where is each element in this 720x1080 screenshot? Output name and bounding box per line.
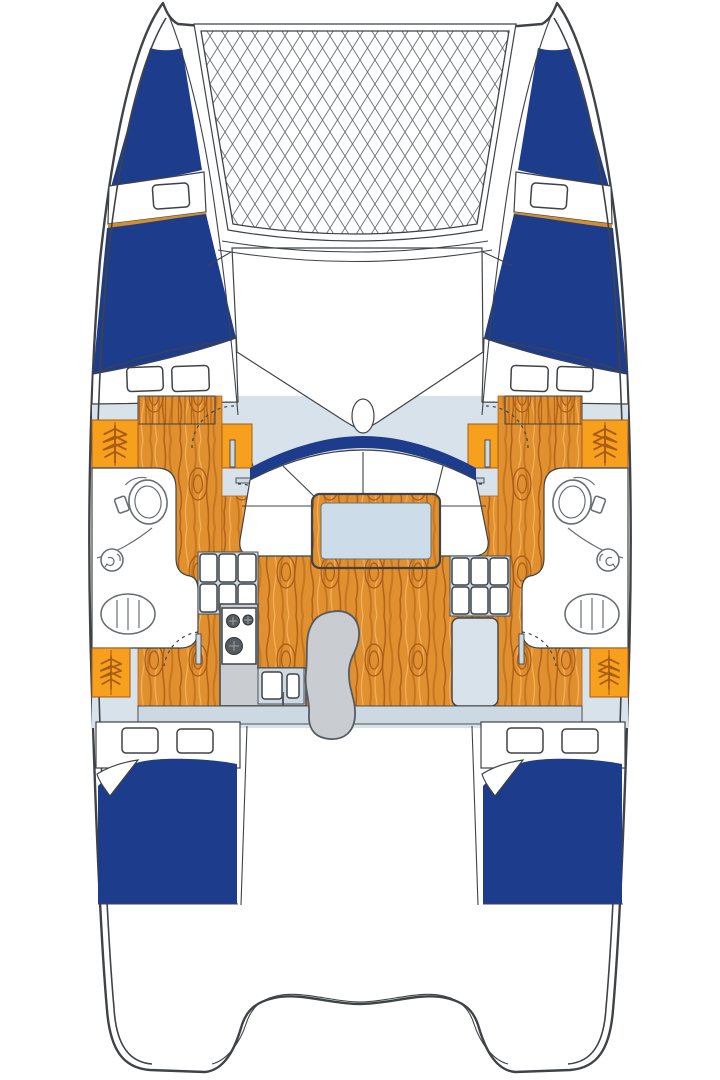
catamaran-floorplan <box>0 0 720 1080</box>
floorplan-svg <box>0 0 720 1080</box>
galley-cabinets-starboard <box>450 556 510 616</box>
fridge-unit <box>452 618 498 706</box>
aft-bulkhead <box>138 706 582 724</box>
saloon-table <box>312 494 440 568</box>
stove <box>222 608 256 664</box>
trampoline-net <box>194 24 516 262</box>
mast-base <box>352 399 374 433</box>
